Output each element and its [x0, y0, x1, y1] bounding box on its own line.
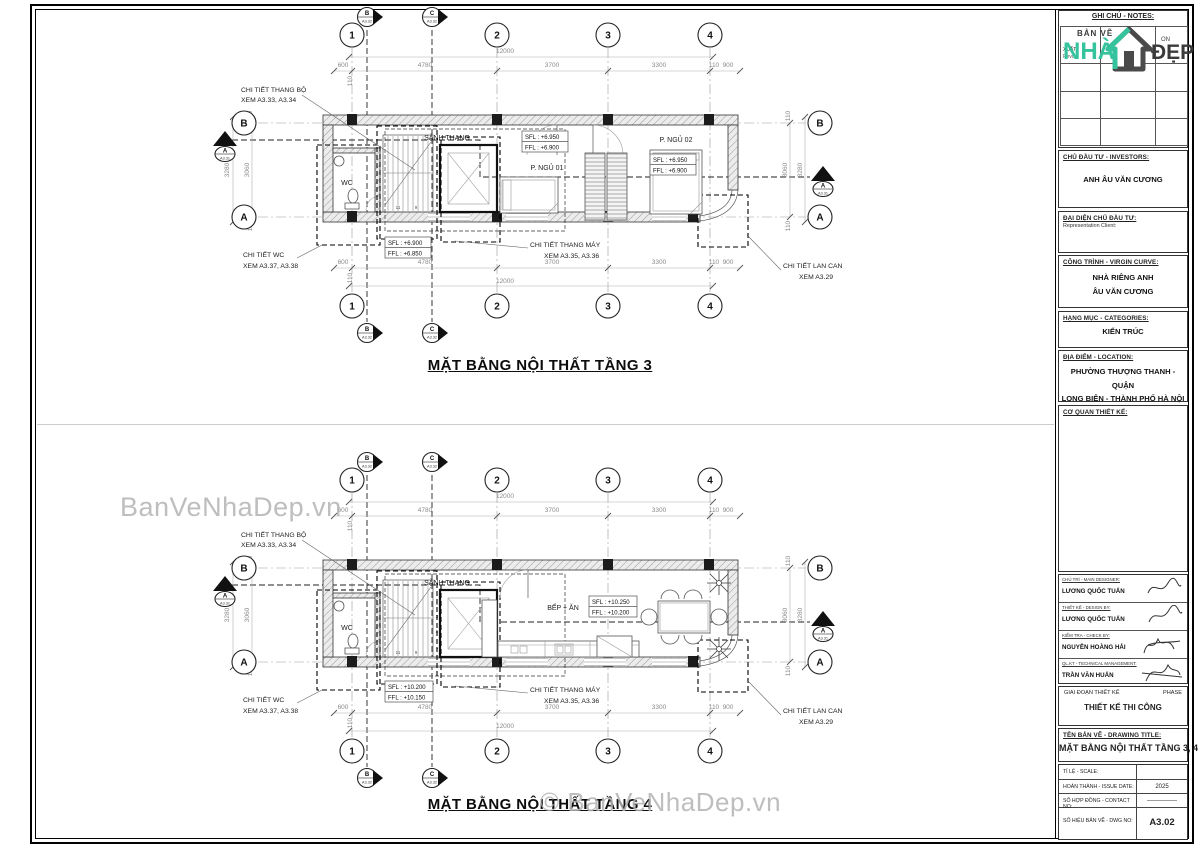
scale-row: TỈ LỆ - SCALE: [1059, 765, 1187, 780]
project-label: CÔNG TRÌNH - VIRGIN CURVE: [1059, 256, 1187, 266]
issue-date-label: HOÀN THÀNH - ISSUE DATE: [1059, 780, 1137, 793]
signature-icon [1140, 633, 1184, 657]
level-box: SFL : +6.900 FFL : +6.850 [385, 237, 431, 258]
investor-box: CHỦ ĐẦU TƯ - INVESTORS: ANH ÂU VĂN CƯƠNG [1058, 150, 1188, 208]
drawing-title-label: TÊN BẢN VẼ - DRAWING TITLE: [1059, 729, 1187, 739]
svg-text:SFL : +6.900: SFL : +6.900 [388, 241, 423, 247]
phase-value: THIẾT KẾ THI CÔNG [1059, 703, 1187, 712]
plan3-title: MẶT BẰNG NỘI THẤT TẦNG 3 [340, 357, 740, 374]
representation-sub: Representation Client: [1059, 222, 1187, 229]
location-label: ĐỊA ĐIỂM - LOCATION: [1059, 351, 1187, 361]
house-icon [1105, 25, 1153, 73]
project-name-2: ÂU VĂN CƯƠNG [1059, 285, 1187, 299]
sheet-info-table: TỈ LỆ - SCALE: HOÀN THÀNH - ISSUE DATE: … [1058, 764, 1188, 840]
representation-label: ĐẠI DIỆN CHỦ ĐẦU TƯ: [1059, 212, 1187, 222]
signature-row: THIẾT KẾ - DESIGN BY: LƯƠNG QUỐC TUẤN [1059, 603, 1187, 631]
svg-text:SFL : +6.950: SFL : +6.950 [525, 135, 560, 141]
dwg-no-value: A3.02 [1137, 808, 1187, 839]
location-line-1: PHƯỜNG THƯỢNG THANH - QUẬN [1059, 365, 1187, 392]
watermark-text: BanVeNhaDep.vn [120, 492, 342, 523]
agency-label: CƠ QUAN THIẾT KẾ: [1059, 406, 1187, 416]
scale-label: TỈ LỆ - SCALE: [1059, 765, 1137, 779]
project-box: CÔNG TRÌNH - VIRGIN CURVE: NHÀ RIÊNG ANH… [1058, 255, 1188, 308]
scale-value [1137, 765, 1187, 779]
svg-text:SFL : +6.950: SFL : +6.950 [653, 158, 688, 164]
drawing-sheet: { "grid": {"c1":"1","c2":"2","c3":"3","c… [0, 0, 1200, 848]
titleblock-separator [1055, 9, 1056, 838]
phase-en-label: PHASE [1163, 690, 1182, 696]
svg-text:FFL : +6.900: FFL : +6.900 [525, 146, 560, 152]
signature-icon [1144, 605, 1184, 627]
bed-1 [500, 177, 558, 213]
location-line-2: LONG BIÊN - THÀNH PHỐ HÀ NỘI [1059, 392, 1187, 406]
investor-name: ANH ÂU VĂN CƯƠNG [1059, 173, 1187, 187]
svg-text:SFL : +10.250: SFL : +10.250 [592, 600, 630, 606]
issue-date-row: HOÀN THÀNH - ISSUE DATE: 2025 [1059, 780, 1187, 794]
kitchen-counter-left [482, 600, 497, 657]
issue-date-value: 2025 [1137, 780, 1187, 793]
room-label-bed2: P. NGỦ 02 [660, 135, 693, 144]
dwg-no-row: SỐ HIỆU BẢN VẼ - DWG NO: A3.02 [1059, 808, 1187, 839]
dining-table [658, 601, 710, 633]
contract-label: SỐ HỢP ĐỒNG - CONTACT NO: [1059, 794, 1137, 807]
phase-box: GIAI ĐOẠN THIẾT KẾ PHASE THIẾT KẾ THI CÔ… [1058, 686, 1188, 726]
plant [707, 571, 731, 595]
level-box: SFL : +10.200 FFL : +10.150 [385, 681, 433, 702]
drawing-title-value: MẶT BẰNG NỘI THẤT TẦNG 3, 4 [1059, 743, 1187, 753]
signature-row: CHỦ TRÌ - MAIN DESIGNER: LƯƠNG QUỐC TUẤN [1059, 575, 1187, 603]
contract-value: ————— [1137, 794, 1187, 807]
signature-icon [1144, 577, 1184, 599]
room-label-bed1: P. NGỦ 01 [531, 163, 564, 172]
wardrobe [607, 153, 627, 220]
representation-box: ĐẠI DIỆN CHỦ ĐẦU TƯ: Representation Clie… [1058, 211, 1188, 253]
contract-row: SỐ HỢP ĐỒNG - CONTACT NO: ————— [1059, 794, 1187, 808]
category-label: HẠNG MỤC - CATEGORIES: [1059, 312, 1187, 322]
svg-text:FFL : +10.200: FFL : +10.200 [592, 611, 630, 617]
level-box: SFL : +10.250 FFL : +10.200 [589, 596, 637, 617]
signature-icon [1140, 661, 1184, 685]
notes-header: GHI CHÚ - NOTES: [1059, 11, 1187, 20]
chair [684, 635, 702, 644]
chair [661, 635, 679, 644]
category-box: HẠNG MỤC - CATEGORIES: KIẾN TRÚC [1058, 311, 1188, 348]
signature-row: KIỂM TRA - CHECK BY: NGUYỄN HOÀNG HẢI [1059, 631, 1187, 659]
dwg-no-label: SỐ HIỆU BẢN VẼ - DWG NO: [1059, 808, 1137, 839]
drawing-area: WC 1 3 5 7 11 9 [36, 6, 1055, 842]
drawing-title-box: TÊN BẢN VẼ - DRAWING TITLE: MẶT BẰNG NỘI… [1058, 728, 1188, 762]
chair [684, 590, 702, 599]
notes-box: GHI CHÚ - NOTES: XUẤT Revi: ON BẢN VẼ NH… [1058, 10, 1188, 148]
investor-label: CHỦ ĐẦU TƯ - INVESTORS: [1059, 151, 1187, 161]
floor-plan-3 [213, 8, 843, 343]
chair [661, 590, 679, 599]
svg-text:FFL : +6.900: FFL : +6.900 [653, 169, 688, 175]
signatures-box: CHỦ TRÌ - MAIN DESIGNER: LƯƠNG QUỐC TUẤN… [1058, 574, 1188, 684]
logo-text-dep: ĐẸP [1151, 41, 1194, 65]
location-box: ĐỊA ĐIỂM - LOCATION: PHƯỜNG THƯỢNG THANH… [1058, 350, 1188, 402]
level-box: SFL : +6.950 FFL : +6.900 [522, 131, 568, 152]
plant [707, 637, 731, 661]
project-name-1: NHÀ RIÊNG ANH [1059, 271, 1187, 285]
floor3-furniture: P. NGỦ 01 P. NGỦ 02 SFL : +6.950 FFL : +… [385, 125, 702, 258]
room-label-kitchen: BẾP + ĂN [547, 602, 579, 612]
company-logo: BẢN VẼ NHÀ ĐẸP [1063, 29, 1185, 71]
chair [641, 609, 657, 625]
phase-label: GIAI ĐOẠN THIẾT KẾ [1064, 690, 1119, 696]
category-value: KIẾN TRÚC [1059, 325, 1187, 339]
svg-text:SFL : +10.200: SFL : +10.200 [388, 685, 426, 691]
signature-row: QL.KT - TECHNICAL MANAGEMENT: TRẦN VĂN H… [1059, 659, 1187, 686]
svg-text:FFL : +10.150: FFL : +10.150 [388, 696, 426, 702]
watermark-text: © BanVeNhaDep.vn [540, 787, 781, 818]
chair [711, 609, 727, 625]
agency-box: CƠ QUAN THIẾT KẾ: [1058, 405, 1188, 572]
svg-text:FFL : +6.850: FFL : +6.850 [388, 252, 423, 258]
level-box: SFL : +6.950 FFL : +6.900 [650, 154, 696, 175]
wardrobe [585, 153, 605, 220]
